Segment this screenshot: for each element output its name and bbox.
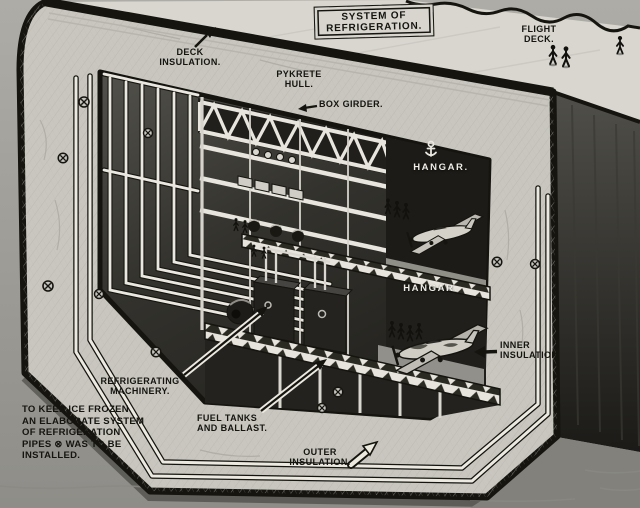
title-line-2: REFRIGERATION. xyxy=(326,21,422,35)
label-flight-deck: FLIGHT DECK. xyxy=(522,24,557,44)
label-deck-insulation: DECK INSULATION. xyxy=(159,47,220,67)
label-fuel-tanks: FUEL TANKS AND BALLAST. xyxy=(197,413,267,433)
label-box-girder: BOX GIRDER. xyxy=(319,99,383,109)
label-outer-insulation: OUTER INSULATION. xyxy=(289,447,350,467)
label-hangar-lower: HANGAR. xyxy=(403,284,459,294)
label-inner-insulation: INNER INSULATION xyxy=(500,340,558,360)
illustration-page: SYSTEM OF REFRIGERATION. DECK INSULATION… xyxy=(0,0,640,508)
label-hangar-upper: HANGAR. xyxy=(413,163,469,173)
label-pykrete-hull: PYKRETE HULL. xyxy=(276,69,321,89)
title-box: SYSTEM OF REFRIGERATION. xyxy=(314,3,435,39)
ship-side-face xyxy=(553,92,640,452)
label-refrigerating-machinery: REFRIGERATING MACHINERY. xyxy=(100,376,179,396)
caption-note: TO KEEP ICE FROZEN AN ELABORATE SYSTEM O… xyxy=(22,404,144,462)
